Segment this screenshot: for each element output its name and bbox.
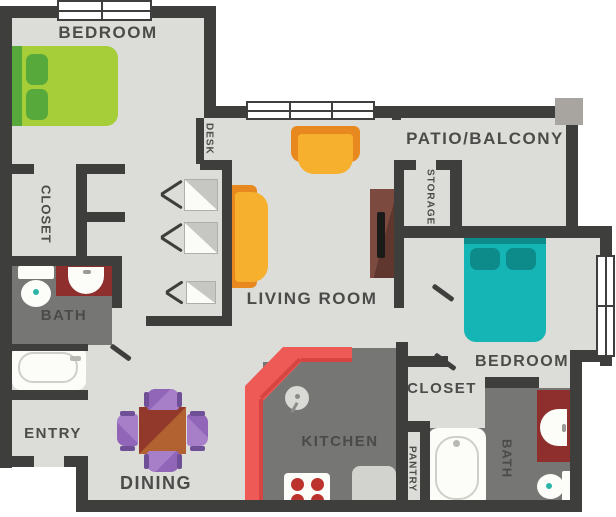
wall-segment	[0, 6, 12, 468]
wall-segment	[404, 160, 416, 170]
toilet-tank-icon	[18, 266, 54, 279]
loveseat-cushion-icon	[298, 134, 353, 174]
dining-table-icon	[139, 407, 186, 454]
counter-edge-icon	[259, 399, 263, 506]
wall-segment	[570, 350, 582, 512]
pillow-icon	[470, 248, 500, 270]
room-label-pantry: PANTRY	[402, 436, 422, 502]
floorplan: BEDROOM CLOSET DESK BATH ENTRY DINING LI…	[0, 0, 616, 517]
floor-patio-lower	[462, 162, 568, 232]
room-label-living: LIVING ROOM	[242, 288, 382, 310]
faucet-icon	[562, 424, 566, 432]
bifold-door-icon	[184, 179, 218, 211]
wall-segment	[0, 456, 34, 467]
wall-segment	[76, 456, 88, 512]
pillow-icon	[26, 54, 48, 85]
window-icon	[246, 101, 375, 120]
chair-icon	[147, 389, 179, 410]
wall-segment	[112, 256, 122, 308]
room-label-storage: STORAGE	[421, 164, 439, 230]
room-label-entry: ENTRY	[18, 424, 88, 442]
room-label-closet2: CLOSET	[408, 379, 476, 397]
wall-segment	[204, 6, 216, 118]
chair-arm-icon	[120, 446, 135, 451]
chair-arm-icon	[120, 411, 135, 416]
wall-segment	[394, 160, 404, 308]
flush-button-icon	[33, 289, 39, 295]
faucet-icon	[83, 270, 91, 274]
wall-segment	[392, 112, 401, 120]
room-label-kitchen: KITCHEN	[298, 432, 382, 450]
pillow-icon	[26, 89, 48, 120]
room-label-bedroom1: BEDROOM	[28, 22, 188, 44]
chair-arm-icon	[144, 392, 149, 407]
pillow-icon	[506, 248, 536, 270]
floor-patio-slider-gap	[394, 118, 404, 162]
room-label-patio: PATIO/BALCONY	[410, 128, 560, 150]
room-label-bath1: BATH	[34, 306, 94, 324]
tv-screen-icon	[377, 212, 385, 258]
room-label-bedroom2: BEDROOM	[474, 352, 570, 372]
drain-icon	[453, 440, 460, 447]
chair-icon	[187, 414, 208, 446]
counter-edge-icon	[301, 358, 352, 362]
wall-segment	[76, 500, 582, 512]
floor-hall2-gap	[396, 308, 406, 344]
wall-segment	[222, 160, 232, 326]
bed-headboard-icon	[12, 46, 22, 126]
chair-arm-icon	[144, 454, 149, 469]
column-icon	[555, 98, 583, 125]
wall-segment	[87, 164, 125, 174]
sofa-cushion-icon	[235, 192, 268, 282]
wall-segment	[450, 160, 462, 238]
wall-segment	[12, 164, 34, 174]
room-label-dining: DINING	[108, 471, 204, 495]
chair-arm-icon	[190, 446, 205, 451]
wall-segment	[87, 212, 125, 222]
floor-front-door-gap	[34, 456, 64, 467]
wall-segment	[76, 164, 87, 266]
chair-arm-icon	[177, 392, 182, 407]
chair-icon	[147, 451, 179, 472]
wall-segment	[566, 116, 578, 238]
room-label-closet1: CLOSET	[34, 166, 58, 262]
wall-segment	[12, 344, 88, 351]
burner-icon	[311, 478, 324, 491]
window-icon	[596, 255, 615, 357]
chair-arm-icon	[190, 411, 205, 416]
wall-segment	[396, 356, 448, 367]
bathtub-rim-icon	[18, 352, 78, 383]
wall-segment	[12, 390, 88, 400]
bifold-door-icon	[186, 281, 216, 304]
bifold-door-icon	[184, 222, 218, 254]
flush-button-icon	[546, 483, 552, 489]
window-icon	[57, 0, 152, 21]
faucet-icon	[70, 356, 81, 361]
wall-segment	[12, 256, 122, 266]
room-label-bath2: BATH	[495, 424, 519, 494]
room-label-desk: DESK	[200, 116, 218, 162]
wall-segment	[485, 377, 539, 388]
faucet-icon	[295, 394, 300, 399]
chair-icon	[117, 414, 138, 446]
chair-arm-icon	[177, 454, 182, 469]
burner-icon	[291, 478, 304, 491]
wall-segment	[146, 316, 232, 326]
